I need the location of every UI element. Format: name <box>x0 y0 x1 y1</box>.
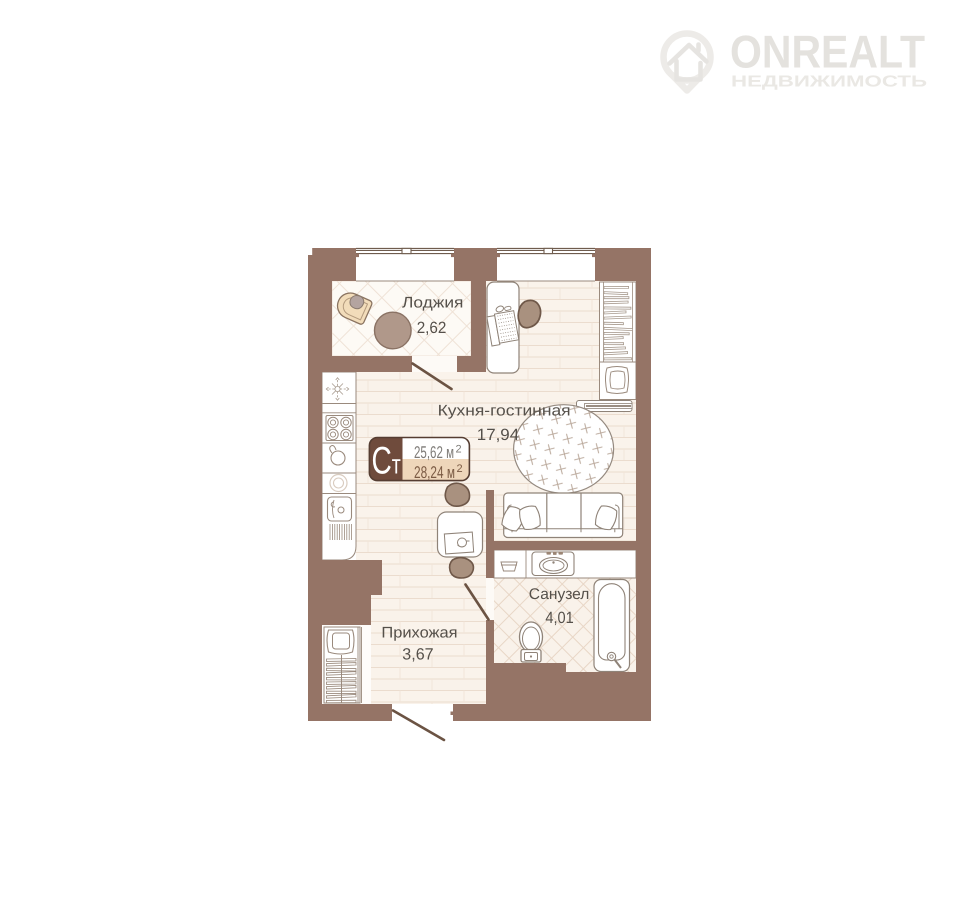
svg-text:28,24 м: 28,24 м <box>414 463 455 482</box>
svg-text:Лоджия: Лоджия <box>402 294 463 311</box>
svg-text:25,62 м: 25,62 м <box>414 443 454 462</box>
svg-text:2: 2 <box>457 463 463 475</box>
svg-text:2,62: 2,62 <box>417 319 447 337</box>
svg-text:НЕДВИЖИМОСТЬ: НЕДВИЖИМОСТЬ <box>731 74 927 91</box>
svg-text:3,67: 3,67 <box>402 645 433 663</box>
svg-text:Кухня-гостинная: Кухня-гостинная <box>438 402 571 419</box>
svg-text:Прихожая: Прихожая <box>381 625 457 642</box>
svg-text:Санузел: Санузел <box>529 586 590 603</box>
svg-text:4,01: 4,01 <box>545 609 573 627</box>
svg-text:17,94: 17,94 <box>477 426 519 444</box>
svg-text:ONREALT: ONREALT <box>730 26 925 78</box>
svg-text:2: 2 <box>456 444 462 456</box>
